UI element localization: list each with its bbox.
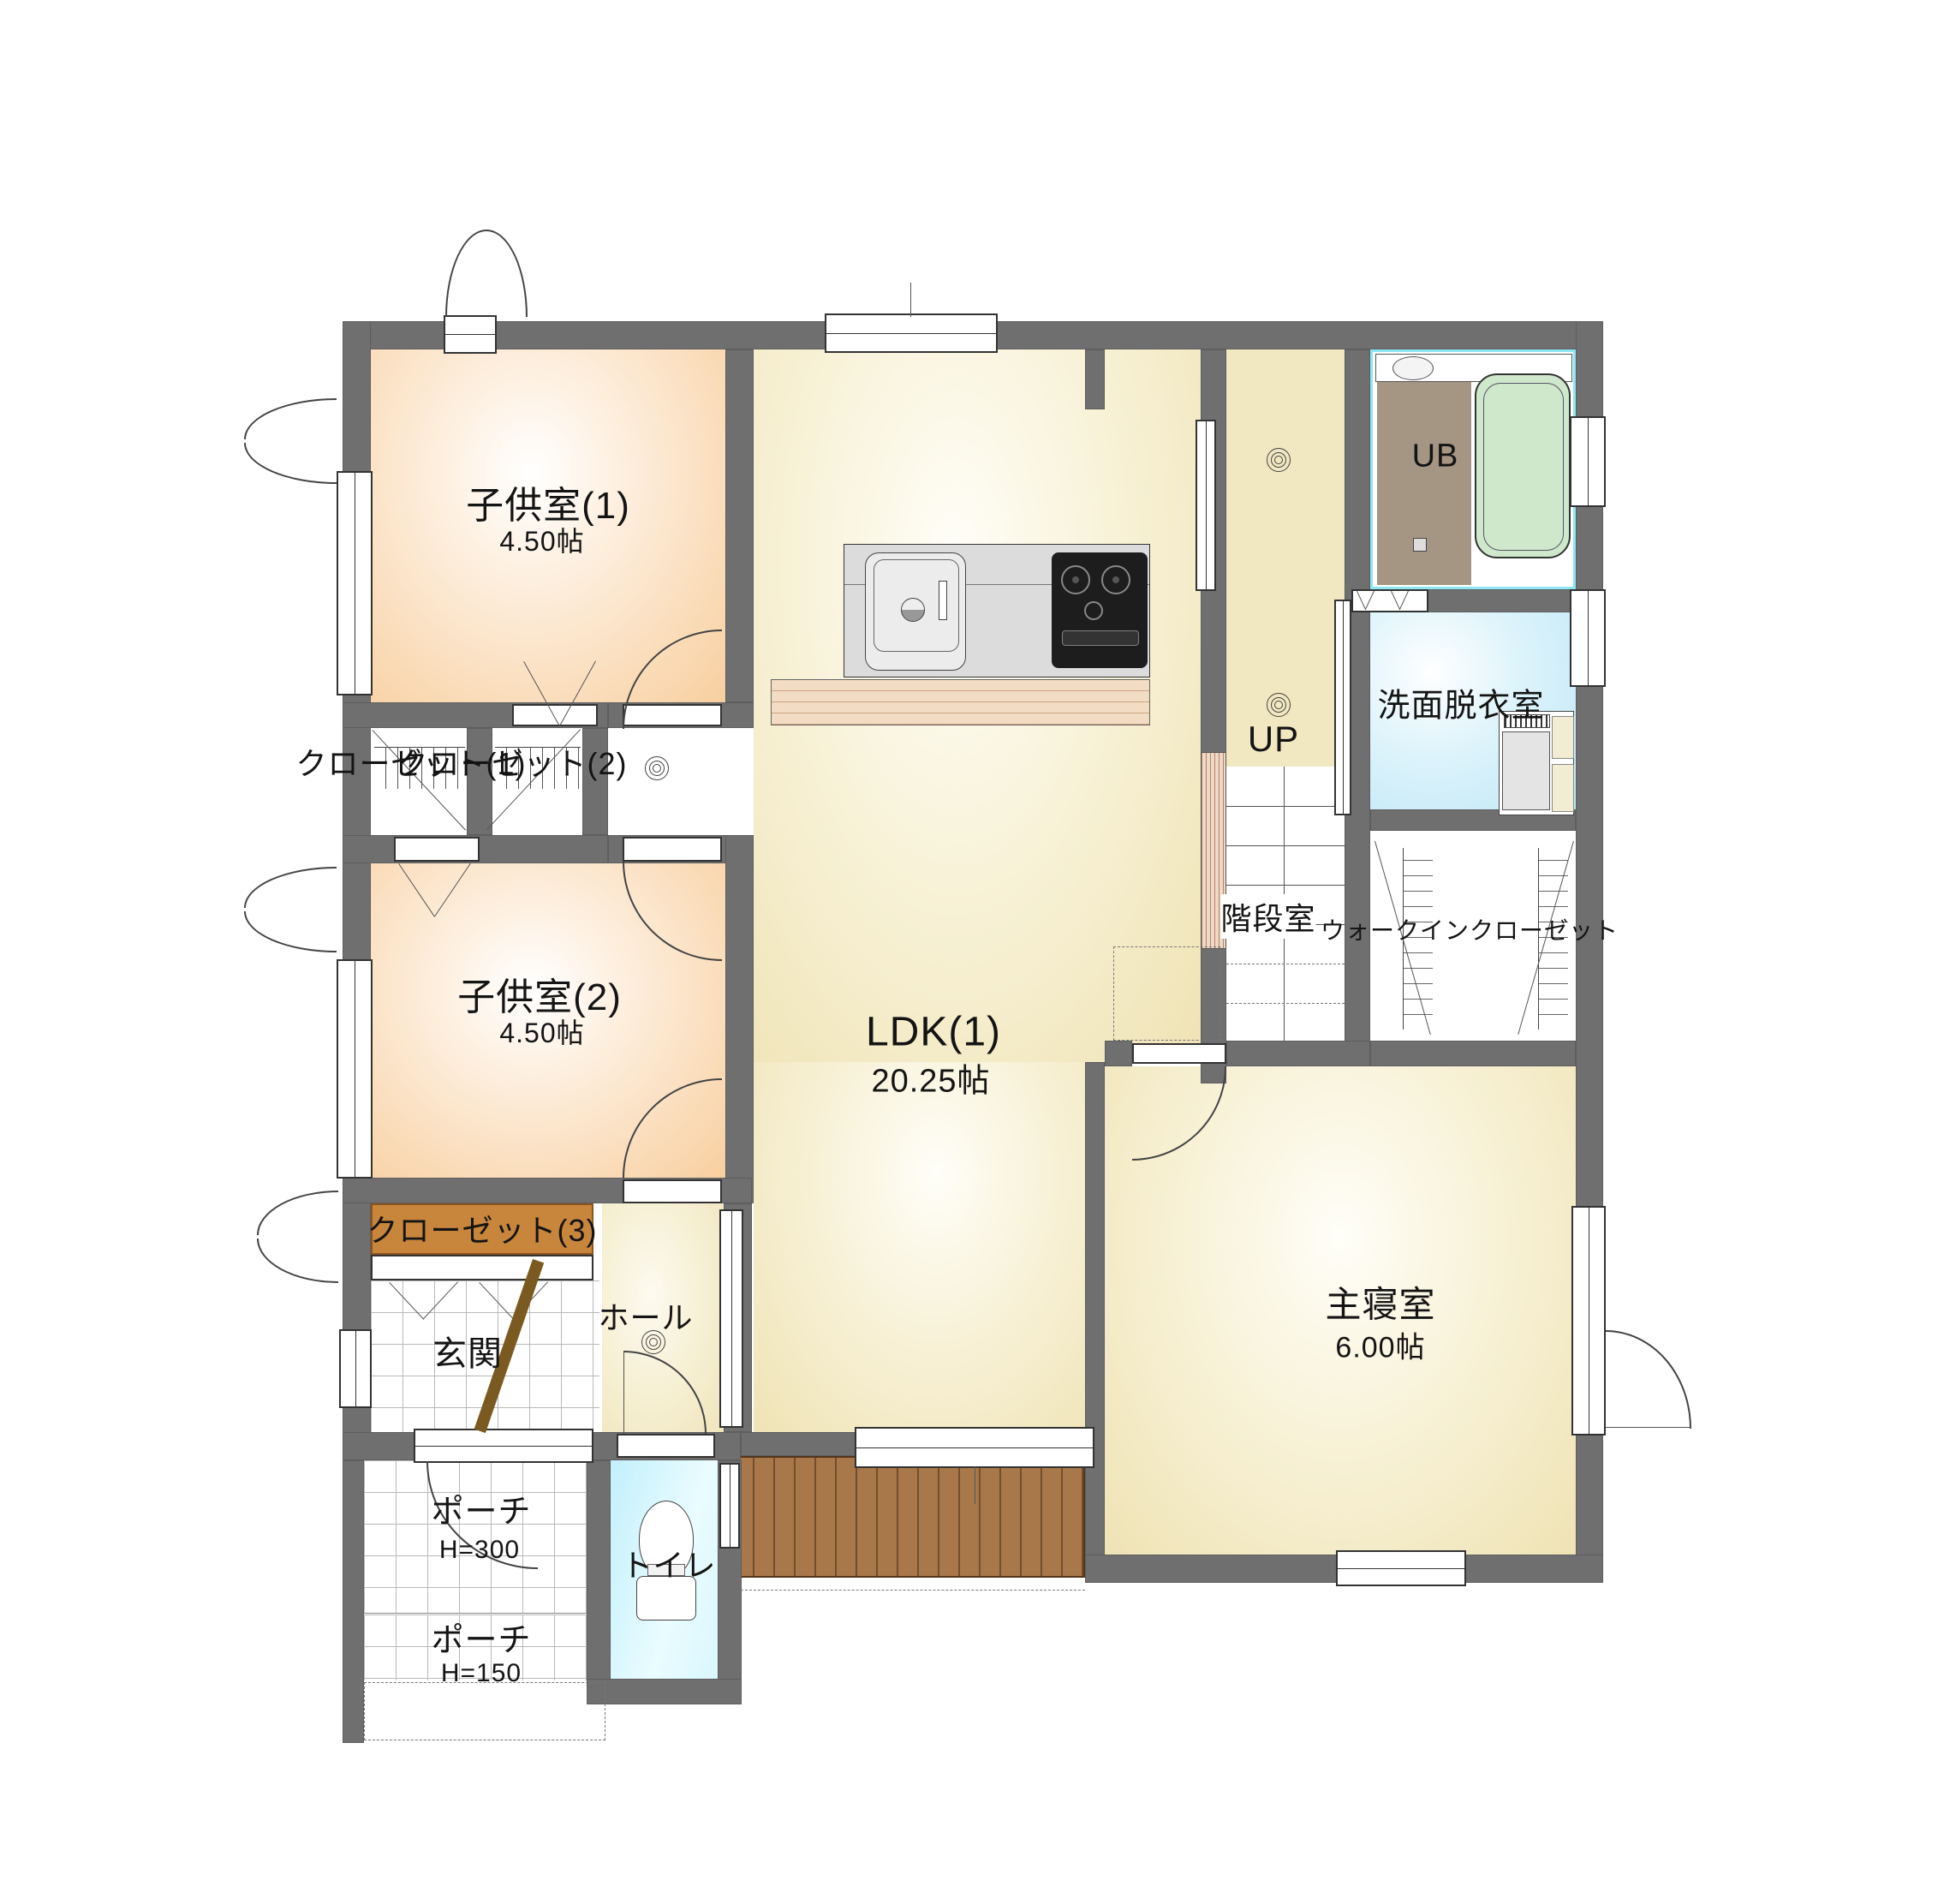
stair-tread-dashed bbox=[1226, 1003, 1345, 1004]
door-kitchen-sliding bbox=[1196, 420, 1216, 591]
stair-tread-dashed bbox=[1226, 964, 1345, 964]
wall-master-left bbox=[1085, 1062, 1105, 1583]
door-arc-master-exterior bbox=[1606, 1330, 1691, 1429]
door-leaf-master-exterior bbox=[1606, 1427, 1691, 1428]
stair-tread bbox=[1226, 845, 1345, 846]
wall-wic-bottom bbox=[1370, 1041, 1576, 1066]
wall-kids2-right bbox=[725, 835, 754, 1203]
downlight-icon bbox=[1267, 448, 1291, 472]
casement-leaf-icon bbox=[244, 867, 337, 908]
door-kids2-bottom-unit bbox=[623, 1179, 722, 1203]
stair-tread bbox=[1226, 806, 1345, 807]
label-entrance: 玄関 bbox=[432, 1326, 503, 1376]
wall-master-top-east bbox=[1226, 1041, 1370, 1066]
label-master-name: 主寝室 bbox=[1325, 1276, 1435, 1328]
label-toilet: トイレ bbox=[621, 1541, 716, 1585]
label-washroom: 洗面脱衣室 bbox=[1377, 679, 1544, 726]
window-ldk-top-sliding bbox=[825, 313, 998, 353]
wall-kids1-right bbox=[725, 349, 754, 702]
window-center-tick bbox=[910, 283, 911, 317]
wood-deck bbox=[730, 1456, 1085, 1578]
wall-toilet-bottom bbox=[587, 1679, 742, 1704]
label-porch-upper-height: H=300 bbox=[439, 1536, 520, 1565]
door-ub-bifold bbox=[1351, 589, 1428, 612]
label-closet2: クローゼット(2) bbox=[397, 739, 628, 784]
door-washroom-sliding bbox=[1334, 600, 1351, 815]
label-porch-lower: ポーチ bbox=[431, 1614, 531, 1661]
label-ldk-size: 20.25帖 bbox=[871, 1054, 990, 1101]
door-entrance-unit bbox=[414, 1429, 593, 1463]
window-kids2-left bbox=[337, 959, 373, 1179]
stove-grill bbox=[1062, 630, 1139, 646]
door-hall-ldk-sliding bbox=[719, 1209, 743, 1428]
label-ldk-name: LDK(1) bbox=[866, 1009, 1001, 1056]
closet-fold-unit-2 bbox=[394, 837, 480, 862]
window-entrance-left bbox=[339, 1329, 372, 1408]
label-closet3: クローゼット(3) bbox=[367, 1206, 598, 1250]
window-ub-right bbox=[1570, 416, 1606, 507]
casement-leaf-icon bbox=[486, 230, 528, 317]
window-ldk-bottom-sliding bbox=[855, 1427, 1094, 1468]
ub-floor bbox=[1377, 382, 1471, 585]
window-washroom-right bbox=[1570, 589, 1606, 687]
casement-leaf-icon bbox=[445, 230, 486, 317]
label-ub: UB bbox=[1412, 439, 1459, 475]
label-kids1-size: 4.50帖 bbox=[499, 520, 584, 559]
casement-leaf-icon bbox=[244, 911, 337, 952]
label-hall: ホール bbox=[598, 1293, 693, 1338]
window-master-bottom bbox=[1336, 1550, 1466, 1586]
wall-master-top-west bbox=[1105, 1041, 1132, 1066]
door-toilet-unit bbox=[617, 1434, 715, 1458]
shower-icon bbox=[1413, 538, 1427, 552]
closet-fold-unit-1 bbox=[512, 704, 598, 726]
window-kids1-left bbox=[337, 471, 373, 695]
casement-leaf-icon bbox=[244, 398, 337, 439]
label-porch-lower-height: H=150 bbox=[441, 1659, 522, 1688]
door-leaf-toilet bbox=[623, 1351, 624, 1434]
casement-leaf-icon bbox=[257, 1191, 338, 1235]
wall-porch-left bbox=[343, 1460, 364, 1743]
porch-lower-edge-dashed bbox=[364, 1682, 605, 1740]
ub-sink-icon bbox=[1392, 356, 1434, 380]
washing-machine-pan-right-top bbox=[1552, 716, 1574, 759]
door-kids2-top-unit bbox=[623, 837, 722, 862]
casement-leaf-icon bbox=[257, 1238, 338, 1283]
downlight-icon bbox=[645, 756, 669, 780]
window-kids1-top bbox=[444, 315, 497, 354]
window-toilet-right bbox=[719, 1463, 740, 1549]
deck-edge-dashed bbox=[736, 1590, 1085, 1591]
label-porch-upper: ポーチ bbox=[431, 1485, 531, 1532]
wall-toilet-left bbox=[587, 1460, 611, 1704]
washing-machine-drum bbox=[1502, 731, 1550, 810]
casement-leaf-icon bbox=[244, 443, 337, 484]
stove-burner-icon bbox=[1061, 565, 1090, 594]
sink-faucet-icon bbox=[939, 581, 947, 620]
door-master-unit bbox=[1132, 1043, 1226, 1064]
window-center-tick bbox=[975, 1466, 975, 1504]
door-closet3-unit bbox=[371, 1255, 593, 1280]
kitchen-wood-strip bbox=[771, 679, 1150, 725]
wall-kitchen-stub bbox=[1085, 349, 1105, 409]
door-master-exterior bbox=[1571, 1206, 1606, 1435]
label-stair-room: 階段室 bbox=[1220, 894, 1315, 939]
label-master-size: 6.00帖 bbox=[1335, 1324, 1425, 1366]
stove-burner-icon bbox=[1101, 565, 1130, 594]
understairs-dashed bbox=[1113, 946, 1220, 1041]
washing-machine-pan-right-bottom bbox=[1552, 764, 1574, 812]
label-up: UP bbox=[1248, 719, 1299, 760]
sink-drain-icon bbox=[901, 598, 925, 622]
room-ldk-lower bbox=[754, 1062, 1085, 1437]
stair-tread bbox=[1226, 885, 1345, 886]
stove-burner-small-icon bbox=[1084, 601, 1103, 620]
label-kids2-size: 4.50帖 bbox=[499, 1012, 584, 1051]
floor-plan: 子供室(1) 4.50帖 子供室(2) 4.50帖 LDK(1) 20.25帖 … bbox=[0, 0, 1944, 1904]
bathtub-inner bbox=[1483, 383, 1564, 551]
downlight-icon bbox=[1267, 693, 1291, 717]
label-wic: ウォークインクローゼット bbox=[1321, 912, 1619, 946]
